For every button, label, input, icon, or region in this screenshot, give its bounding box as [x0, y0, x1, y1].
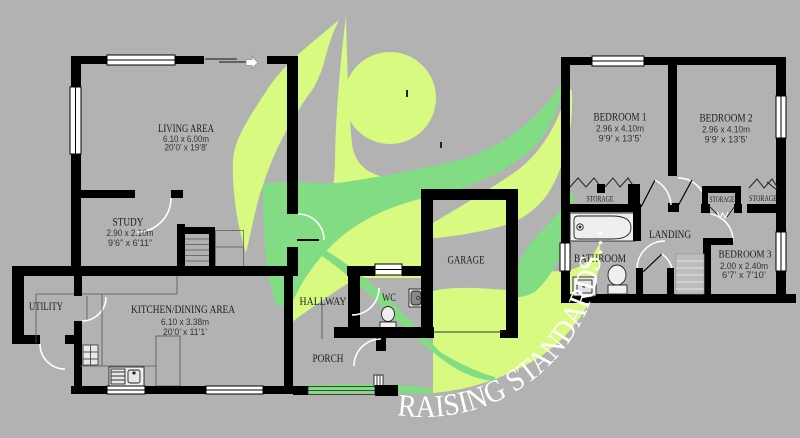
svg-text:PORCH: PORCH — [313, 353, 344, 365]
svg-text:BEDROOM 1: BEDROOM 1 — [594, 112, 647, 124]
svg-text:9’9’ x 13’5’: 9’9’ x 13’5’ — [599, 134, 642, 144]
svg-text:BEDROOM 3: BEDROOM 3 — [719, 250, 772, 261]
svg-text:2.90 x 2.10m: 2.90 x 2.10m — [107, 228, 154, 238]
svg-text:GARAGE: GARAGE — [448, 255, 485, 267]
svg-text:20’0’ x 19’8’: 20’0’ x 19’8’ — [165, 143, 208, 153]
svg-text:2.96 x 4.10m: 2.96 x 4.10m — [702, 125, 750, 135]
svg-text:6’7’ x 7’10’: 6’7’ x 7’10’ — [722, 270, 766, 280]
svg-text:STORAGE: STORAGE — [749, 194, 777, 203]
svg-text:STUDY: STUDY — [113, 217, 144, 229]
svg-text:9’6” x 6’11”: 9’6” x 6’11” — [108, 238, 152, 248]
svg-text:STORAGE: STORAGE — [710, 195, 735, 204]
svg-text:20’0’ x 11’1’: 20’0’ x 11’1’ — [163, 327, 207, 337]
svg-text:UTILITY: UTILITY — [29, 301, 63, 313]
svg-text:LANDING: LANDING — [649, 229, 691, 241]
svg-text:KITCHEN/DINING AREA: KITCHEN/DINING AREA — [131, 304, 236, 316]
svg-text:9’9’ x 13’5’: 9’9’ x 13’5’ — [705, 135, 748, 145]
svg-text:WC: WC — [382, 292, 396, 304]
svg-text:6.10 x 3.38m: 6.10 x 3.38m — [161, 317, 209, 327]
svg-text:STORAGE: STORAGE — [587, 195, 614, 204]
svg-text:2.96 x 4.10m: 2.96 x 4.10m — [596, 124, 644, 134]
svg-text:HALLWAY: HALLWAY — [300, 296, 347, 308]
svg-text:BEDROOM 2: BEDROOM 2 — [700, 113, 753, 125]
